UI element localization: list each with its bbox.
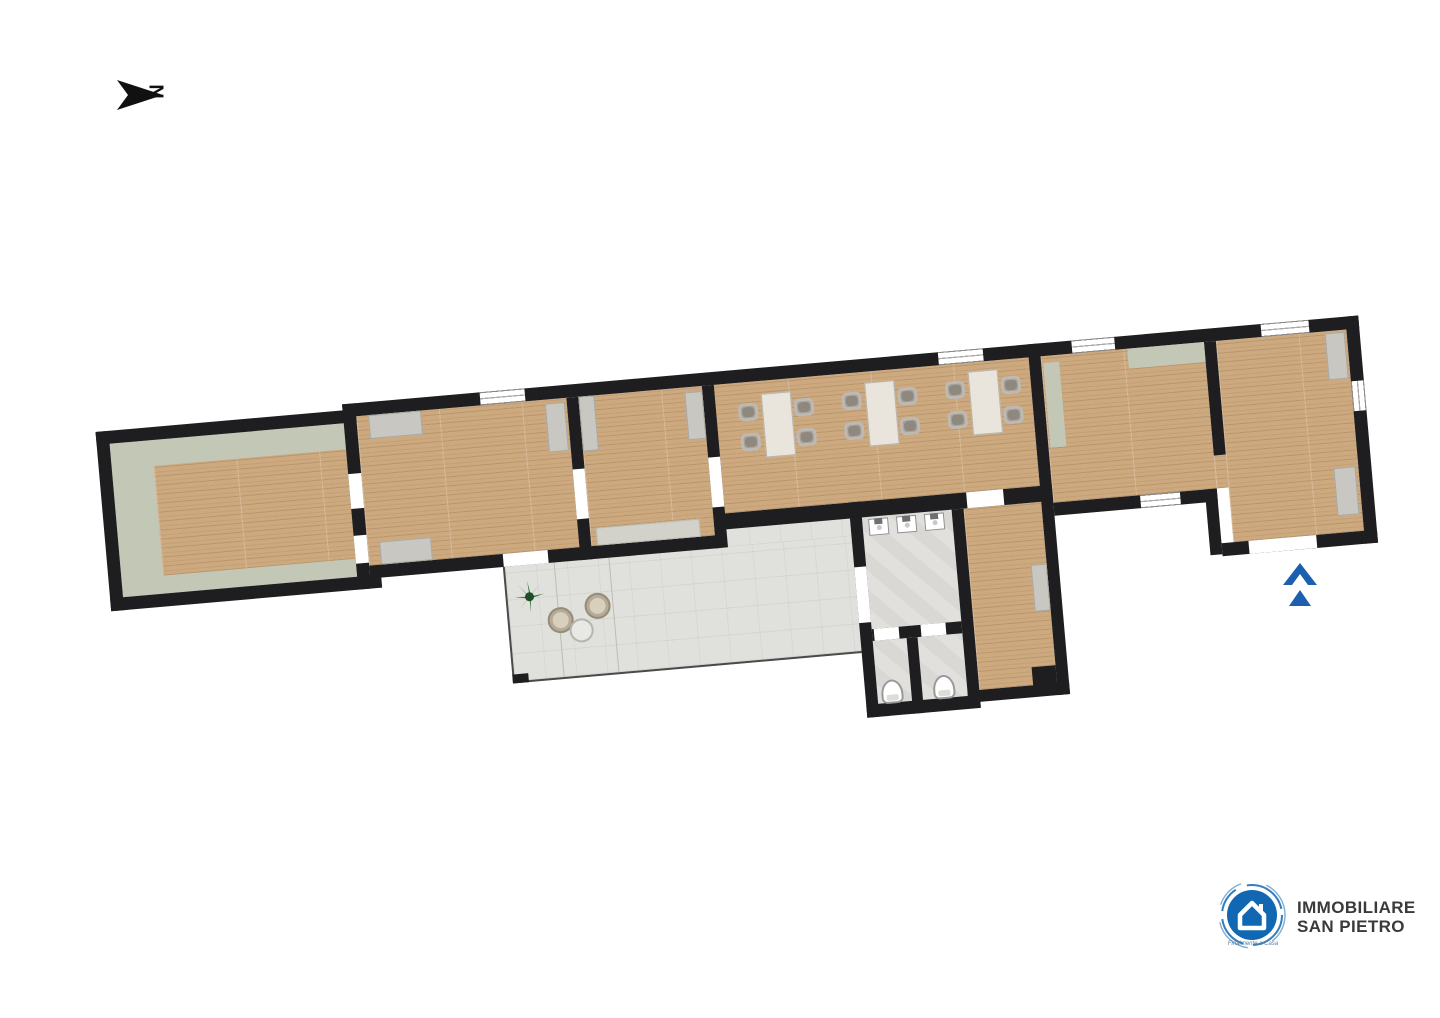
radiator-b-right (545, 402, 569, 453)
chair (1000, 375, 1021, 395)
chair (844, 421, 865, 441)
chair (944, 380, 965, 400)
logo-text: IMMOBILIARE SAN PIETRO (1297, 898, 1416, 936)
entrance-arrow-icon (1280, 560, 1320, 608)
radiator-f-right (1333, 466, 1359, 516)
radiator-f-topright (1325, 332, 1349, 381)
sink-icon (896, 515, 917, 534)
sink-icon (924, 512, 945, 531)
window-right-wall (1351, 380, 1367, 411)
door-wc1 (874, 627, 900, 641)
floorplan (95, 314, 1407, 790)
logo-line-1: IMMOBILIARE (1297, 898, 1416, 917)
chair (841, 391, 862, 411)
door-a-b-2 (354, 535, 369, 564)
plant-icon (511, 578, 548, 615)
door-wc2 (920, 623, 946, 637)
table-2 (864, 380, 899, 446)
chair (897, 386, 918, 406)
chair (793, 397, 814, 417)
floorplan-canvas: N (0, 0, 1440, 1018)
room-a-wood-inset (154, 449, 356, 575)
logo-line-2: SAN PIETRO (1297, 917, 1416, 936)
window-room-e-bottom (1140, 492, 1181, 508)
sink-icon (868, 517, 889, 536)
corridor-stub-wall (1032, 665, 1058, 687)
chair (740, 432, 761, 452)
logo-tagline: Finalmente a Casa (1218, 941, 1288, 947)
radiator-b-bottomleft (379, 537, 433, 564)
chair (899, 416, 920, 436)
door-corridor (966, 489, 1004, 508)
chair (796, 427, 817, 447)
table-1 (761, 391, 796, 457)
table-3 (968, 369, 1003, 435)
agency-logo-icon (1214, 882, 1298, 960)
radiator-b-topleft (368, 411, 423, 440)
north-label: N (144, 84, 167, 98)
terrace-corner-post (512, 673, 529, 683)
chair (1003, 405, 1024, 425)
chair (947, 410, 968, 430)
chair (738, 402, 759, 422)
